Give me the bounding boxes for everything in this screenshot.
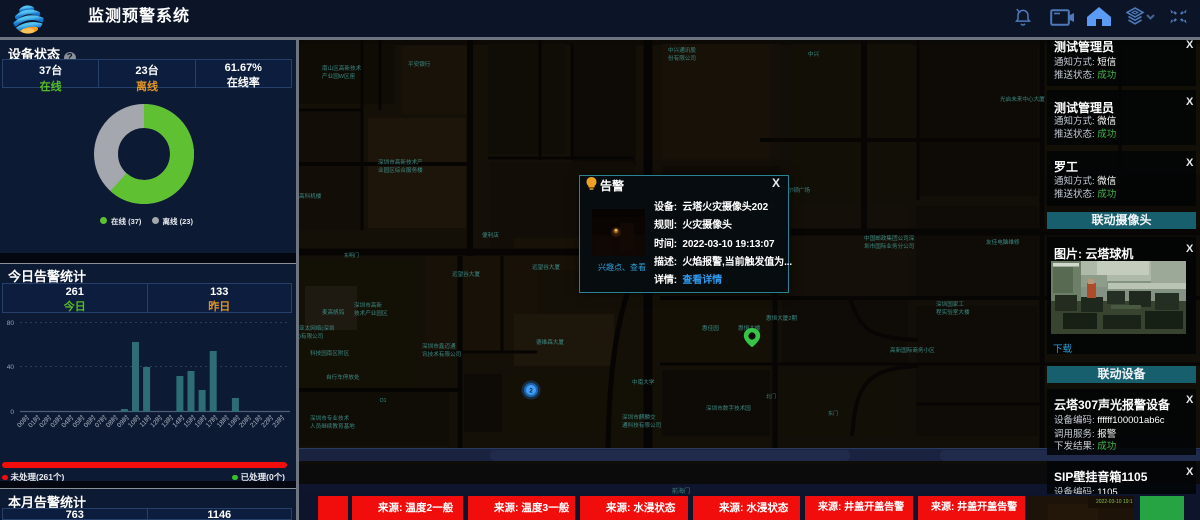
svg-text:东门: 东门 [828, 410, 838, 417]
svg-text:德维森大厦: 德维森大厦 [536, 338, 564, 346]
svg-text:光启未来中心大厦: 光启未来中心大厦 [1000, 95, 1045, 103]
svg-text:份有限公司: 份有限公司 [668, 54, 696, 62]
svg-text:深圳市鑫迈通: 深圳市鑫迈通 [422, 342, 456, 350]
svg-text:40: 40 [7, 364, 15, 371]
svg-text:通科技有限公司: 通科技有限公司 [622, 421, 661, 429]
svg-text:东明门: 东明门 [344, 252, 359, 259]
svg-text:中国邮政集团公司深: 中国邮政集团公司深 [864, 234, 915, 242]
svg-text:圳市国际业务分公司: 圳市国际业务分公司 [864, 242, 914, 250]
svg-text:中兴通讯股: 中兴通讯股 [668, 46, 696, 54]
svg-text:深圳市高新技术产: 深圳市高新技术产 [378, 158, 423, 166]
svg-text:远望谷大厦: 远望谷大厦 [532, 263, 560, 271]
svg-text:中南大学: 中南大学 [632, 378, 655, 386]
svg-text:亚太网络(深圳: 亚太网络(深圳 [299, 324, 335, 332]
svg-text:2022-03-10 19:1: 2022-03-10 19:1 [1096, 499, 1133, 505]
svg-text:惠佳园: 惠佳园 [702, 324, 719, 332]
svg-text:北门: 北门 [766, 393, 776, 400]
svg-text:程实验室大楼: 程实验室大楼 [936, 308, 970, 316]
svg-text:深圳市高新: 深圳市高新 [354, 301, 382, 309]
svg-text:0: 0 [10, 409, 14, 416]
svg-text:深圳市专业技术: 深圳市专业技术 [310, 414, 350, 422]
svg-text:南山区高新技术: 南山区高新技术 [322, 64, 362, 72]
svg-text:业园区综合服务楼: 业园区综合服务楼 [378, 166, 423, 174]
svg-text:自行车停放处: 自行车停放处 [326, 373, 360, 381]
svg-text:科技园南区附区: 科技园南区附区 [310, 349, 350, 357]
svg-text:高科机楼: 高科机楼 [299, 192, 322, 200]
svg-text:讯技术有限公司: 讯技术有限公司 [422, 350, 461, 358]
svg-text:远望谷大厦: 远望谷大厦 [452, 270, 480, 278]
svg-text:中兴: 中兴 [808, 50, 820, 58]
svg-text:2: 2 [529, 388, 533, 395]
svg-text:便利店: 便利店 [482, 231, 499, 239]
svg-text:深圳市数字技术园: 深圳市数字技术园 [706, 404, 751, 412]
svg-text:产业园W区座: 产业园W区座 [322, 72, 356, 80]
svg-text:D1: D1 [380, 398, 387, 404]
svg-text:80: 80 [7, 320, 15, 327]
svg-text:麦高帆钨: 麦高帆钨 [322, 308, 345, 316]
svg-text:惠恒大厦2期: 惠恒大厦2期 [766, 314, 797, 322]
svg-text:技术产业园区: 技术产业园区 [354, 309, 388, 317]
svg-text:)有限公司: )有限公司 [299, 332, 323, 340]
svg-text:平安银行: 平安银行 [408, 60, 431, 68]
svg-text:深圳国家工: 深圳国家工 [936, 300, 964, 308]
svg-text:友佳电脑维修: 友佳电脑维修 [986, 238, 1020, 246]
svg-text:高新国际商务小区: 高新国际商务小区 [890, 346, 935, 354]
svg-text:深圳市麒麟交: 深圳市麒麟交 [622, 413, 656, 421]
svg-text:人员继续教育基地: 人员继续教育基地 [310, 422, 355, 430]
